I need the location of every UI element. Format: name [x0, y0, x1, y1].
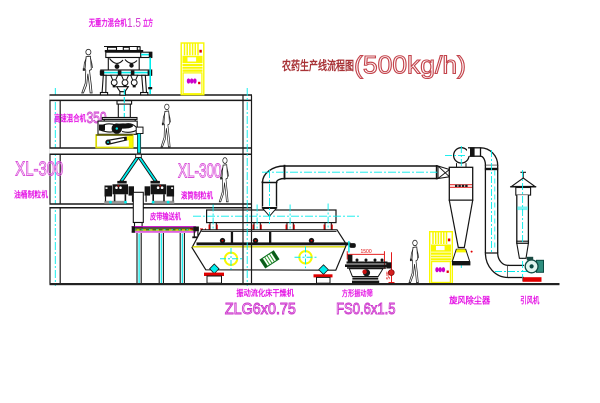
svg-text:1.5: 1.5 [127, 15, 141, 30]
svg-text:皮带输送机: 皮带输送机 [149, 212, 181, 222]
svg-text:1500: 1500 [361, 249, 372, 255]
svg-text:ZLG6x0.75: ZLG6x0.75 [225, 301, 296, 318]
svg-text:无重力混合机: 无重力混合机 [88, 17, 127, 28]
svg-text:高速混合机: 高速混合机 [54, 113, 86, 124]
svg-text:XL-300: XL-300 [178, 161, 222, 183]
svg-text:农药生产线流程图: 农药生产线流程图 [281, 58, 354, 73]
svg-text:方形振动筛: 方形振动筛 [342, 288, 373, 298]
svg-text:滚筒制粒机: 滚筒制粒机 [181, 191, 213, 201]
svg-text:FS0.6x1.5: FS0.6x1.5 [336, 301, 395, 318]
svg-text:旋风除尘器: 旋风除尘器 [448, 295, 491, 306]
svg-text:振动流化床干燥机: 振动流化床干燥机 [236, 288, 294, 298]
svg-text:立方: 立方 [143, 17, 153, 28]
svg-text:引风机: 引风机 [520, 295, 539, 306]
svg-text:(500kg/h): (500kg/h) [354, 52, 466, 80]
svg-text:XL-300: XL-300 [15, 159, 63, 181]
svg-text:油桶制粒机: 油桶制粒机 [14, 190, 48, 200]
